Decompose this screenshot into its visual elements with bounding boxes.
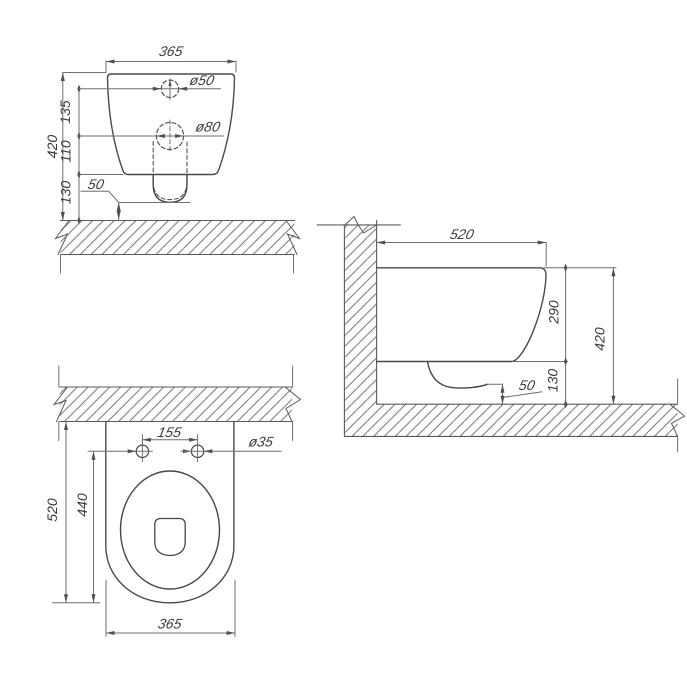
svg-text:520: 520 xyxy=(449,226,476,242)
svg-text:520: 520 xyxy=(44,498,60,522)
svg-text:155: 155 xyxy=(156,424,183,440)
svg-text:130: 130 xyxy=(545,369,561,393)
svg-text:110: 110 xyxy=(58,140,74,163)
svg-text:290: 290 xyxy=(546,300,562,325)
svg-text:130: 130 xyxy=(58,181,74,205)
svg-text:ø35: ø35 xyxy=(247,434,275,450)
svg-text:ø80: ø80 xyxy=(194,118,222,134)
svg-text:365: 365 xyxy=(157,616,184,632)
svg-text:ø50: ø50 xyxy=(188,72,216,88)
svg-text:420: 420 xyxy=(592,327,608,351)
svg-text:365: 365 xyxy=(158,43,185,59)
svg-text:440: 440 xyxy=(74,493,90,517)
svg-text:135: 135 xyxy=(57,100,73,124)
